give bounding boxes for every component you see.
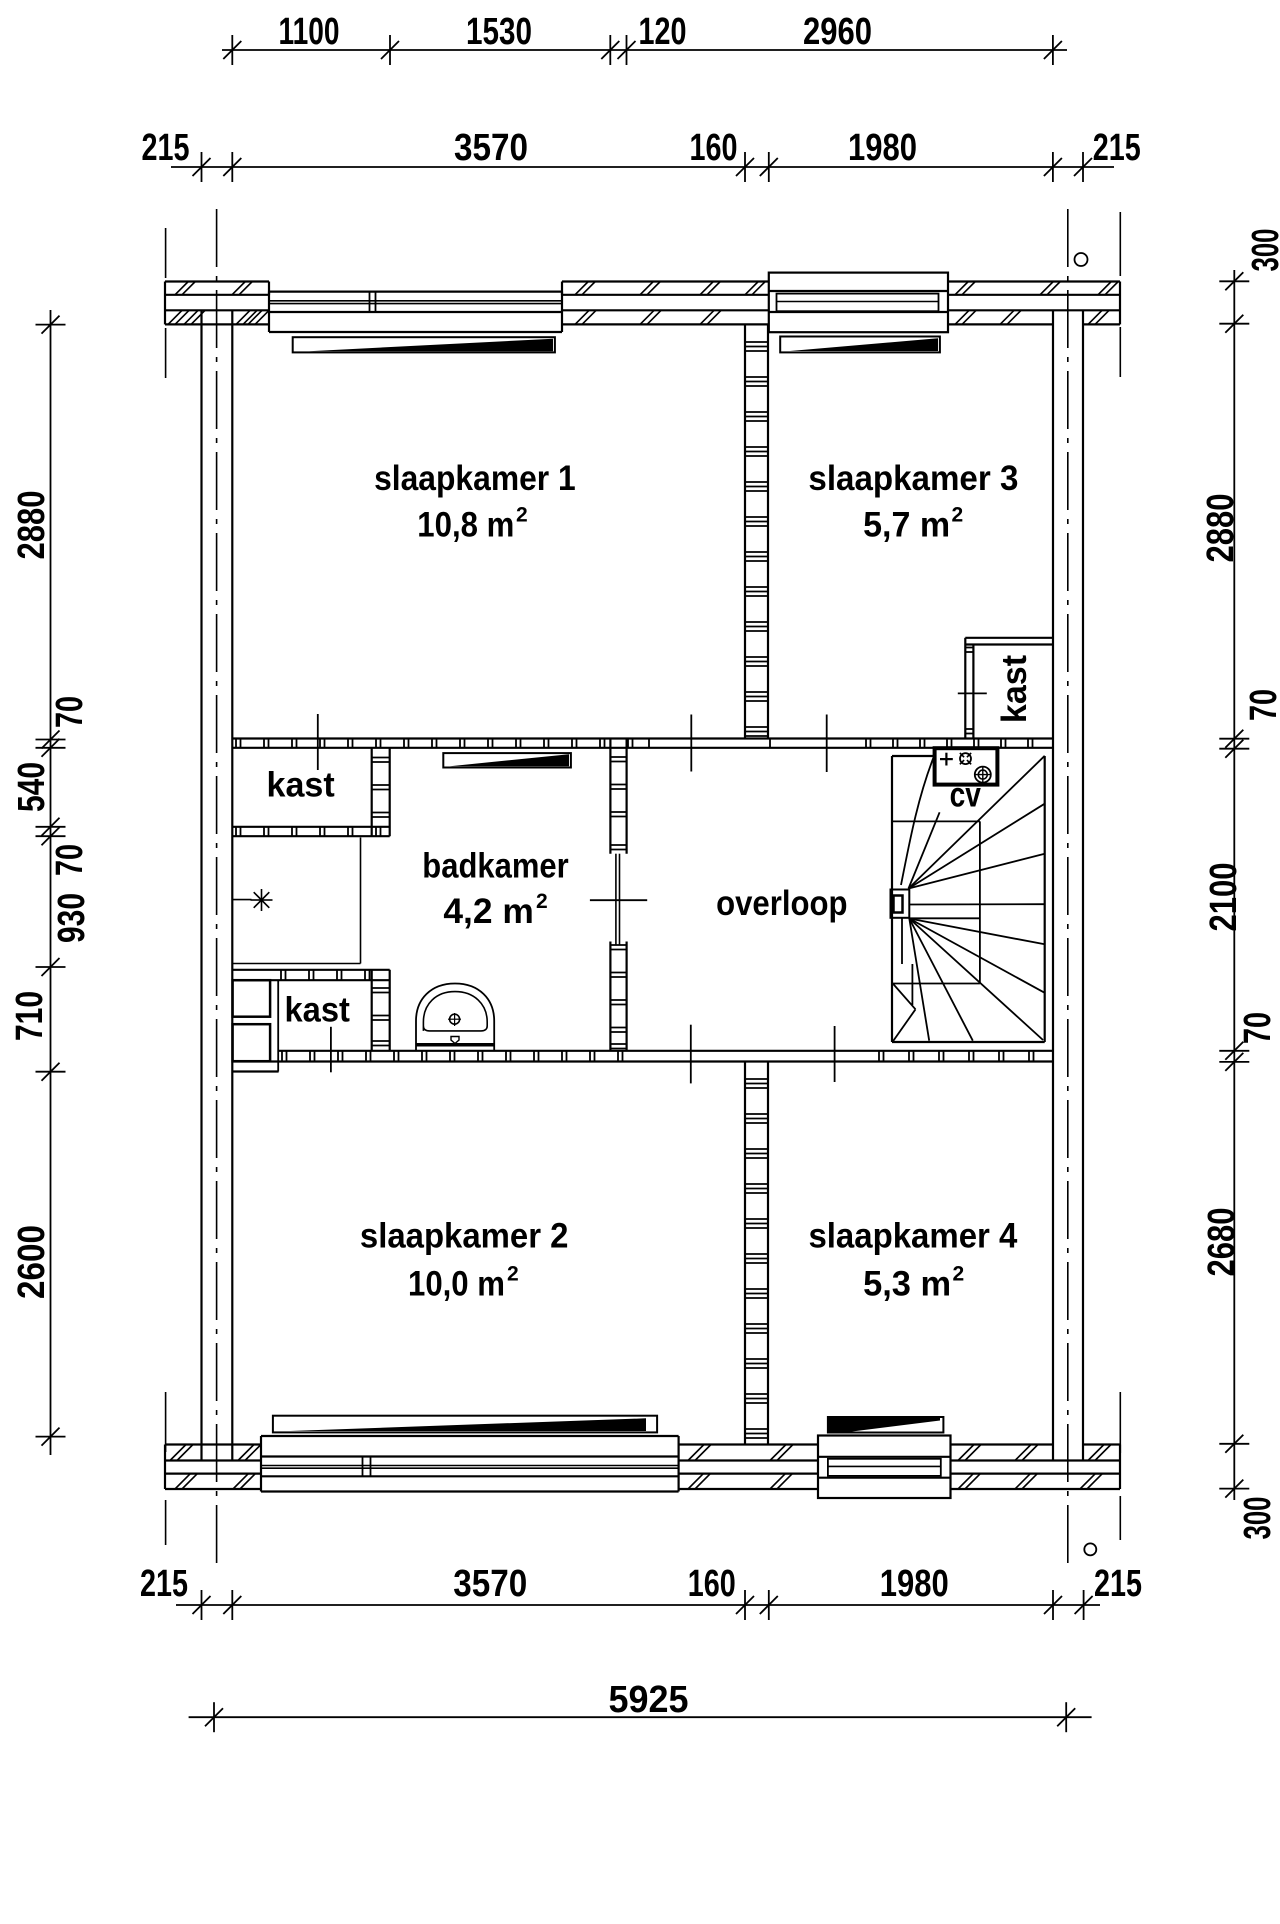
svg-text:930: 930 xyxy=(51,893,93,943)
svg-text:2: 2 xyxy=(516,504,528,527)
svg-text:2: 2 xyxy=(953,1263,965,1286)
svg-text:540: 540 xyxy=(11,762,53,812)
svg-text:slaapkamer 1: slaapkamer 1 xyxy=(374,459,576,498)
svg-text:215: 215 xyxy=(142,127,190,169)
svg-text:1980: 1980 xyxy=(880,1563,949,1605)
svg-text:slaapkamer 3: slaapkamer 3 xyxy=(808,459,1018,498)
svg-text:2880: 2880 xyxy=(11,491,53,560)
svg-text:710: 710 xyxy=(9,991,51,1041)
svg-text:slaapkamer 4: slaapkamer 4 xyxy=(808,1217,1017,1256)
svg-text:2960: 2960 xyxy=(803,11,872,53)
svg-text:2880: 2880 xyxy=(1200,494,1242,563)
svg-text:215: 215 xyxy=(1093,127,1141,169)
svg-text:overloop: overloop xyxy=(716,884,847,923)
svg-text:2: 2 xyxy=(536,890,548,913)
svg-text:70: 70 xyxy=(49,696,91,728)
svg-text:4,2 m: 4,2 m xyxy=(443,892,533,931)
svg-text:kast: kast xyxy=(267,766,336,805)
svg-text:badkamer: badkamer xyxy=(422,847,569,886)
svg-text:kast: kast xyxy=(995,655,1034,724)
svg-text:215: 215 xyxy=(140,1563,188,1605)
svg-text:5925: 5925 xyxy=(609,1679,689,1721)
svg-text:10,8 m: 10,8 m xyxy=(417,506,514,545)
svg-text:2100: 2100 xyxy=(1203,863,1245,932)
svg-text:2600: 2600 xyxy=(11,1225,53,1299)
svg-text:3570: 3570 xyxy=(454,127,528,169)
svg-text:5,7 m: 5,7 m xyxy=(863,506,950,545)
svg-text:215: 215 xyxy=(1094,1563,1142,1605)
svg-text:5,3 m: 5,3 m xyxy=(863,1265,951,1304)
svg-text:2: 2 xyxy=(952,504,964,527)
svg-text:3570: 3570 xyxy=(453,1563,527,1605)
svg-text:120: 120 xyxy=(639,11,687,53)
svg-text:70: 70 xyxy=(1237,1012,1279,1044)
svg-text:70: 70 xyxy=(49,844,91,876)
svg-text:2680: 2680 xyxy=(1201,1208,1243,1277)
svg-text:160: 160 xyxy=(688,1563,736,1605)
svg-text:10,0 m: 10,0 m xyxy=(408,1265,505,1304)
svg-text:1100: 1100 xyxy=(279,11,340,53)
svg-text:slaapkamer 2: slaapkamer 2 xyxy=(360,1217,569,1256)
svg-text:kast: kast xyxy=(285,991,351,1030)
svg-text:160: 160 xyxy=(690,127,738,169)
svg-text:cv: cv xyxy=(950,776,982,815)
svg-text:300: 300 xyxy=(1245,229,1280,272)
svg-text:1530: 1530 xyxy=(466,11,532,53)
svg-text:300: 300 xyxy=(1237,1497,1279,1540)
svg-text:1980: 1980 xyxy=(848,127,917,169)
svg-text:70: 70 xyxy=(1243,689,1280,721)
svg-text:2: 2 xyxy=(507,1263,519,1286)
